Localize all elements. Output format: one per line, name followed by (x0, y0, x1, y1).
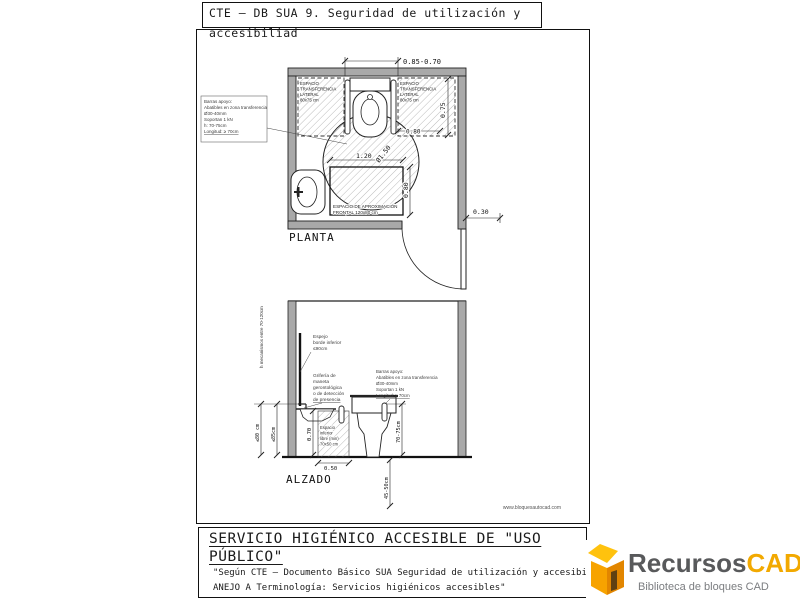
footer-heading-line2: PÚBLICO" (209, 549, 283, 565)
recursoscad-box-icon (588, 543, 628, 597)
svg-text:h: 70-75cm: h: 70-75cm (204, 123, 227, 128)
dim-seat-height: 45-50cm (384, 477, 390, 499)
logo-brand-secondary: CAD (747, 548, 800, 578)
dim-free-height: 0.70 (307, 428, 313, 441)
dim-basin-free: ≤80 cm (255, 424, 261, 442)
svg-text:maneta: maneta (313, 379, 329, 385)
svg-text:Barras apoyo:: Barras apoyo: (204, 99, 232, 104)
svg-text:inferior: inferior (320, 431, 333, 436)
svg-text:ESPACIO: ESPACIO (300, 81, 319, 86)
svg-text:ESPACIO: ESPACIO (400, 81, 419, 86)
toilet-plan (350, 78, 390, 137)
dim-transfer-width: 0.80 (406, 129, 421, 136)
svg-text:Soportan 1 kN: Soportan 1 kN (376, 387, 404, 392)
footer-heading-line1: SERVICIO HIGIÉNICO ACCESIBLE DE "USO (209, 531, 541, 547)
mirror-note: Espejo borde inferior ≤90cm (313, 334, 342, 352)
footer-body-line2: ANEJO A Terminología: Servicios higiénic… (213, 583, 506, 593)
plan-view-label: PLANTA (289, 231, 335, 244)
sheet-title-line1: CTE — DB SUA 9. Seguridad de utilización… (209, 6, 521, 20)
tap-note: Grifería de maneta gerontológica o de de… (313, 373, 345, 403)
cad-drawing: 0.85-0.70 0.75 0.80 1.20 0.80 Ø1.50 0.30… (0, 0, 800, 600)
footer-body-line1: "Según CTE — Documento Básico SUA Seguri… (213, 568, 587, 578)
recursoscad-logo[interactable]: RecursosCAD Biblioteca de bloques CAD (586, 540, 800, 600)
footer-title-block: SERVICIO HIGIÉNICO ACCESIBLE DE "USO PÚB… (198, 527, 587, 598)
svg-text:gerontológica: gerontológica (313, 385, 342, 391)
svg-text:Grifería de: Grifería de (313, 373, 336, 379)
svg-text:ESPACIO DE APROXIMACIÓN: ESPACIO DE APROXIMACIÓN (333, 203, 398, 209)
dim-basin-top: ≤85cm (271, 427, 277, 442)
svg-text:borde inferior: borde inferior (313, 340, 342, 346)
svg-text:Abatibles en zona transferenci: Abatibles en zona transferencia (376, 375, 438, 380)
logo-tagline: Biblioteca de bloques CAD (638, 581, 769, 593)
svg-text:Longitud: ≥ 70cm: Longitud: ≥ 70cm (204, 129, 239, 134)
door-plan (402, 221, 466, 289)
toilet-elevation (350, 396, 398, 457)
dim-bar-height: 70-75cm (396, 421, 402, 443)
svg-text:TRANSFERENCIA: TRANSFERENCIA (400, 87, 436, 92)
svg-text:Barras apoyo:: Barras apoyo: (376, 369, 403, 374)
dim-depth: 0.75 (439, 102, 447, 118)
svg-text:de presencia: de presencia (313, 397, 341, 403)
svg-text:Longitud: ≥ 70cm: Longitud: ≥ 70cm (376, 393, 410, 398)
dim-approach-depth: 0.80 (402, 182, 410, 198)
dim-door-offset: 0.30 (473, 208, 489, 216)
dim-door-width: 0.85-0.70 (403, 58, 441, 66)
plan-view: 0.85-0.70 0.75 0.80 1.20 0.80 Ø1.50 0.30… (201, 57, 503, 289)
svg-text:Ø30-40mm: Ø30-40mm (204, 111, 227, 116)
svg-text:70x50 cm: 70x50 cm (320, 442, 339, 447)
washbasin-plan (291, 170, 325, 214)
logo-wordmark: RecursosCAD (628, 548, 800, 579)
logo-brand-primary: Recursos (628, 548, 747, 578)
svg-text:Abatibles en zona transferenci: Abatibles en zona transferencia (204, 105, 268, 110)
mirror-note-leader (300, 352, 311, 372)
svg-text:o de detección: o de detección (313, 391, 345, 397)
svg-text:Soportan 1 kN: Soportan 1 kN (204, 117, 233, 122)
svg-text:LATERAL: LATERAL (300, 92, 319, 97)
sheet-title-line2: accesibiliad (209, 26, 298, 40)
svg-text:80x75 cm: 80x75 cm (300, 98, 319, 103)
tap-note-leader (304, 403, 322, 408)
svg-text:≤90cm: ≤90cm (313, 346, 327, 352)
elevation-view-label: ALZADO (286, 473, 332, 486)
watermark: www.bloquesautocad.com (503, 505, 561, 511)
elev-bars-note: Barras apoyo: Abatibles en zona transfer… (376, 369, 438, 398)
dim-approach-width: 1.20 (356, 152, 372, 160)
svg-text:LATERAL: LATERAL (400, 92, 419, 97)
cad-sheet-page: CTE — DB SUA 9. Seguridad de utilización… (0, 0, 800, 600)
elevation-view: Espacio inferior libre (min) 70x50 cm (254, 301, 472, 509)
svg-text:FRONTAL 120x80 cm: FRONTAL 120x80 cm (333, 210, 378, 215)
svg-text:TRANSFERENCIA: TRANSFERENCIA (300, 87, 336, 92)
mechanisms-note: h mecanismos entre 70-120cm (259, 306, 264, 368)
svg-text:Espacio: Espacio (320, 425, 336, 430)
dim-free-depth: 0.50 (324, 466, 337, 472)
svg-text:80x75 cm: 80x75 cm (400, 98, 419, 103)
svg-text:Ø30-40mm: Ø30-40mm (376, 381, 398, 386)
svg-text:libre (min): libre (min) (320, 436, 339, 441)
svg-text:Espejo: Espejo (313, 334, 328, 340)
